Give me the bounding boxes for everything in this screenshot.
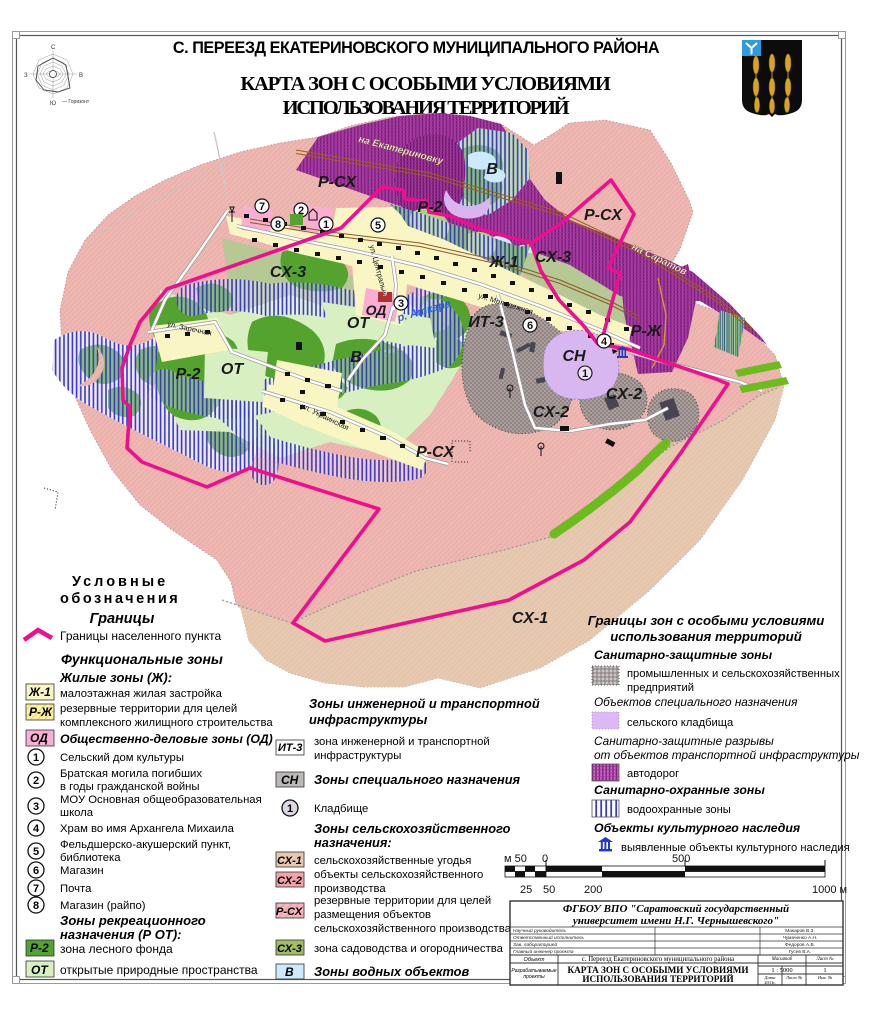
svg-text:3: 3 (33, 801, 39, 813)
svg-text:Макаров В.З.: Макаров В.З. (785, 928, 815, 934)
svg-text:СХ-3: СХ-3 (270, 264, 306, 281)
svg-text:Р-2: Р-2 (30, 941, 49, 955)
svg-text:Магазин (райпо): Магазин (райпо) (60, 900, 146, 912)
svg-text:Р-2: Р-2 (176, 366, 201, 383)
svg-text:Общественно-деловые зоны (ОД): Общественно-деловые зоны (ОД) (60, 732, 273, 746)
svg-text:1: 1 (823, 967, 826, 974)
svg-text:ИТ-3: ИТ-3 (278, 742, 302, 754)
svg-text:СХ-2: СХ-2 (533, 404, 569, 421)
svg-text:— Горизонт: — Горизонт (62, 99, 90, 105)
svg-text:комплексного жилищного строите: комплексного жилищного строительства (60, 717, 273, 729)
svg-text:В: В (486, 161, 498, 178)
svg-text:Инв. №: Инв. № (817, 975, 833, 980)
svg-text:Зав. лабораторией: Зав. лабораторией (513, 941, 557, 948)
svg-text:Магазин: Магазин (60, 865, 104, 877)
svg-text:З: З (24, 73, 28, 79)
svg-text:малоэтажная жилая застройка: малоэтажная жилая застройка (60, 688, 223, 700)
svg-text:сельского кладбища: сельского кладбища (627, 717, 734, 729)
svg-text:Границы: Границы (90, 611, 155, 627)
svg-text:Сельский дом культуры: Сельский дом культуры (60, 752, 184, 764)
svg-text:2011г.: 2011г. (764, 980, 776, 985)
svg-text:1000 м: 1000 м (812, 884, 847, 896)
svg-text:ИТ-3: ИТ-3 (468, 314, 504, 331)
svg-text:Почта: Почта (60, 883, 92, 895)
svg-text:Санитарно-охранные зоны: Санитарно-охранные зоны (594, 783, 765, 797)
svg-text:Лист №: Лист № (816, 956, 834, 962)
svg-text:СХ-2: СХ-2 (277, 875, 302, 887)
svg-text:выявленные объекты культурного: выявленные объекты культурного наследия (621, 842, 850, 854)
svg-text:200: 200 (584, 884, 602, 896)
svg-text:6: 6 (33, 865, 39, 877)
svg-text:Федоров А.В.: Федоров А.В. (785, 942, 815, 948)
svg-text:1 : 5000: 1 : 5000 (771, 967, 792, 974)
svg-text:размещения объектов: размещения объектов (314, 909, 431, 921)
svg-text:зона лесного фонда: зона лесного фонда (60, 942, 173, 956)
svg-text:Ж-1: Ж-1 (28, 685, 51, 699)
svg-text:Зоны инженерной и транспортной: Зоны инженерной и транспортной (309, 696, 540, 711)
svg-text:8: 8 (33, 900, 39, 912)
svg-text:ОТ: ОТ (31, 963, 49, 977)
svg-text:ОД: ОД (366, 302, 387, 318)
svg-text:СХ-1: СХ-1 (512, 610, 548, 627)
svg-text:Р-2: Р-2 (418, 199, 443, 216)
svg-text:МОУ Основная общеобразовательн: МОУ Основная общеобразовательная (60, 794, 262, 806)
svg-text:Масштаб: Масштаб (771, 957, 793, 962)
svg-text:Объект: Объект (524, 957, 545, 963)
svg-text:Зоны рекреационного: Зоны рекреационного (60, 913, 206, 928)
svg-text:2: 2 (33, 775, 39, 787)
svg-text:КАРТА ЗОН С ОСОБЫМИ УСЛОВИЯМИ: КАРТА ЗОН С ОСОБЫМИ УСЛОВИЯМИ (240, 73, 611, 95)
svg-text:500: 500 (672, 853, 690, 865)
svg-text:4: 4 (33, 823, 40, 835)
svg-text:Р-СХ: Р-СХ (318, 174, 357, 191)
svg-text:СХ-2: СХ-2 (606, 386, 642, 403)
svg-text:Зоны водных объектов: Зоны водных объектов (314, 964, 469, 979)
svg-text:университет имени Н.Г. Черныше: университет имени Н.Г. Чернышевского" (571, 915, 779, 927)
svg-text:5: 5 (375, 220, 381, 232)
svg-text:в годы гражданской войны: в годы гражданской войны (60, 781, 200, 793)
svg-text:Научный руководитель: Научный руководитель (513, 927, 566, 934)
svg-text:4: 4 (601, 336, 608, 348)
svg-text:1: 1 (33, 752, 39, 764)
svg-text:В: В (285, 965, 294, 979)
svg-text:1: 1 (323, 219, 329, 231)
svg-text:Братская могила погибших: Братская могила погибших (60, 768, 202, 780)
svg-text:8: 8 (275, 219, 281, 231)
svg-text:автодорог: автодорог (627, 768, 679, 780)
svg-text:объекты сельскохозяйственного: объекты сельскохозяйственного (314, 869, 483, 881)
svg-text:Чумаченко А.Н.: Чумаченко А.Н. (783, 935, 818, 941)
svg-text:ОД: ОД (30, 731, 48, 745)
svg-text:В: В (350, 349, 362, 366)
svg-text:Р-СХ: Р-СХ (416, 444, 455, 461)
svg-text:Санитарно-защитные зоны: Санитарно-защитные зоны (594, 648, 773, 662)
svg-text:Р-Ж: Р-Ж (631, 323, 663, 340)
svg-text:м 50: м 50 (504, 853, 527, 865)
svg-text:1: 1 (582, 368, 588, 380)
svg-text:7: 7 (33, 883, 39, 895)
svg-text:водоохранные зоны: водоохранные зоны (627, 804, 731, 816)
svg-text:зона садоводства и огородничес: зона садоводства и огородничества (314, 943, 504, 955)
svg-text:назначения:: назначения: (314, 835, 392, 850)
svg-text:С. ПЕРЕЕЗД ЕКАТЕРИНОВСКОГО МУН: С. ПЕРЕЕЗД ЕКАТЕРИНОВСКОГО МУНИЦИПАЛЬНОГ… (173, 38, 660, 57)
svg-text:с. Переезд Екатериновского мун: с. Переезд Екатериновского муниципальног… (582, 956, 734, 963)
svg-text:проекты: проекты (523, 974, 545, 980)
svg-text:ФГБОУ ВПО "Саратовский государ: ФГБОУ ВПО "Саратовский государственный (563, 903, 789, 915)
svg-text:Р-Ж: Р-Ж (29, 705, 53, 719)
svg-text:от объектов транспортной инфра: от объектов транспортной инфраструктуры (594, 748, 860, 762)
svg-text:резервные территории для целей: резервные территории для целей (60, 703, 237, 715)
svg-text:СХ-3: СХ-3 (535, 249, 571, 266)
svg-text:7: 7 (259, 201, 265, 213)
svg-text:Зоны сельскохозяйственного: Зоны сельскохозяйственного (314, 821, 511, 836)
svg-text:0: 0 (542, 853, 548, 865)
svg-text:Жилые зоны (Ж):: Жилые зоны (Ж): (59, 670, 172, 685)
svg-text:Границы зон с особыми условиям: Границы зон с особыми условиями (588, 613, 825, 628)
svg-text:Ж-1: Ж-1 (488, 254, 518, 271)
svg-text:Ответственный исполнитель: Ответственный исполнитель (513, 934, 584, 941)
svg-text:Объекты культурного наследия: Объекты культурного наследия (594, 821, 801, 835)
svg-text:Храм во имя Архангела Михаила: Храм во имя Архангела Михаила (60, 823, 235, 835)
svg-text:Р-СХ: Р-СХ (584, 207, 623, 224)
svg-text:открытые природные пространств: открытые природные пространства (60, 963, 258, 977)
svg-text:5: 5 (33, 846, 39, 858)
svg-text:инфраструктуры: инфраструктуры (314, 750, 401, 762)
svg-text:Ю: Ю (50, 101, 56, 107)
svg-text:инфраструктуры: инфраструктуры (309, 712, 427, 727)
svg-text:50: 50 (543, 884, 555, 896)
svg-text:Зоны специального назначения: Зоны специального назначения (314, 772, 521, 787)
svg-text:СН: СН (281, 773, 299, 787)
svg-text:СХ-3: СХ-3 (277, 943, 302, 955)
svg-text:Гусев В.А.: Гусев В.А. (789, 949, 812, 955)
svg-text:СН: СН (562, 348, 586, 365)
svg-text:сельскохозяйственные угодья: сельскохозяйственные угодья (314, 855, 471, 867)
svg-text:1: 1 (287, 803, 293, 815)
svg-text:Кладбище: Кладбище (314, 803, 368, 815)
svg-text:Санитарно-защитные разрывы: Санитарно-защитные разрывы (594, 734, 774, 748)
svg-text:Главный инженер проекта: Главный инженер проекта (513, 948, 574, 955)
svg-text:Р-СХ: Р-СХ (276, 906, 303, 918)
svg-text:Границы населенного пункта: Границы населенного пункта (60, 629, 222, 643)
svg-text:Лист №: Лист № (785, 975, 803, 980)
svg-text:Условные: Условные (72, 574, 168, 590)
svg-text:резервные территории для целей: резервные территории для целей (314, 895, 491, 907)
svg-text:назначения (Р ОТ):: назначения (Р ОТ): (60, 927, 182, 942)
svg-text:производства: производства (314, 883, 386, 895)
svg-text:Фельдшерско-акушерский пункт,: Фельдшерско-акушерский пункт, (60, 839, 231, 851)
svg-text:3: 3 (398, 298, 404, 310)
svg-text:школа: школа (60, 807, 94, 819)
svg-text:обозначения: обозначения (60, 591, 180, 607)
svg-text:В: В (79, 73, 83, 79)
svg-text:ИСПОЛЬЗОВАНИЯ ТЕРРИТОРИЙ: ИСПОЛЬЗОВАНИЯ ТЕРРИТОРИЙ (582, 974, 733, 984)
svg-text:С: С (51, 45, 56, 51)
svg-text:Объектов специального назначен: Объектов специального назначения (594, 695, 798, 709)
svg-text:библиотека: библиотека (60, 852, 121, 864)
svg-text:использования территорий: использования территорий (610, 629, 802, 644)
svg-text:СХ-1: СХ-1 (277, 855, 302, 867)
svg-text:зона инженерной и транспортной: зона инженерной и транспортной (314, 736, 490, 748)
svg-text:ОТ: ОТ (221, 361, 244, 378)
svg-text:сельскохозяйственного производ: сельскохозяйственного производства (314, 923, 512, 935)
svg-text:25: 25 (520, 884, 532, 896)
svg-text:промышленных и сельскохозяйств: промышленных и сельскохозяйственных (627, 668, 840, 680)
svg-text:Функциональные зоны: Функциональные зоны (61, 651, 223, 667)
svg-text:предприятий: предприятий (627, 682, 694, 694)
svg-text:6: 6 (527, 320, 533, 332)
